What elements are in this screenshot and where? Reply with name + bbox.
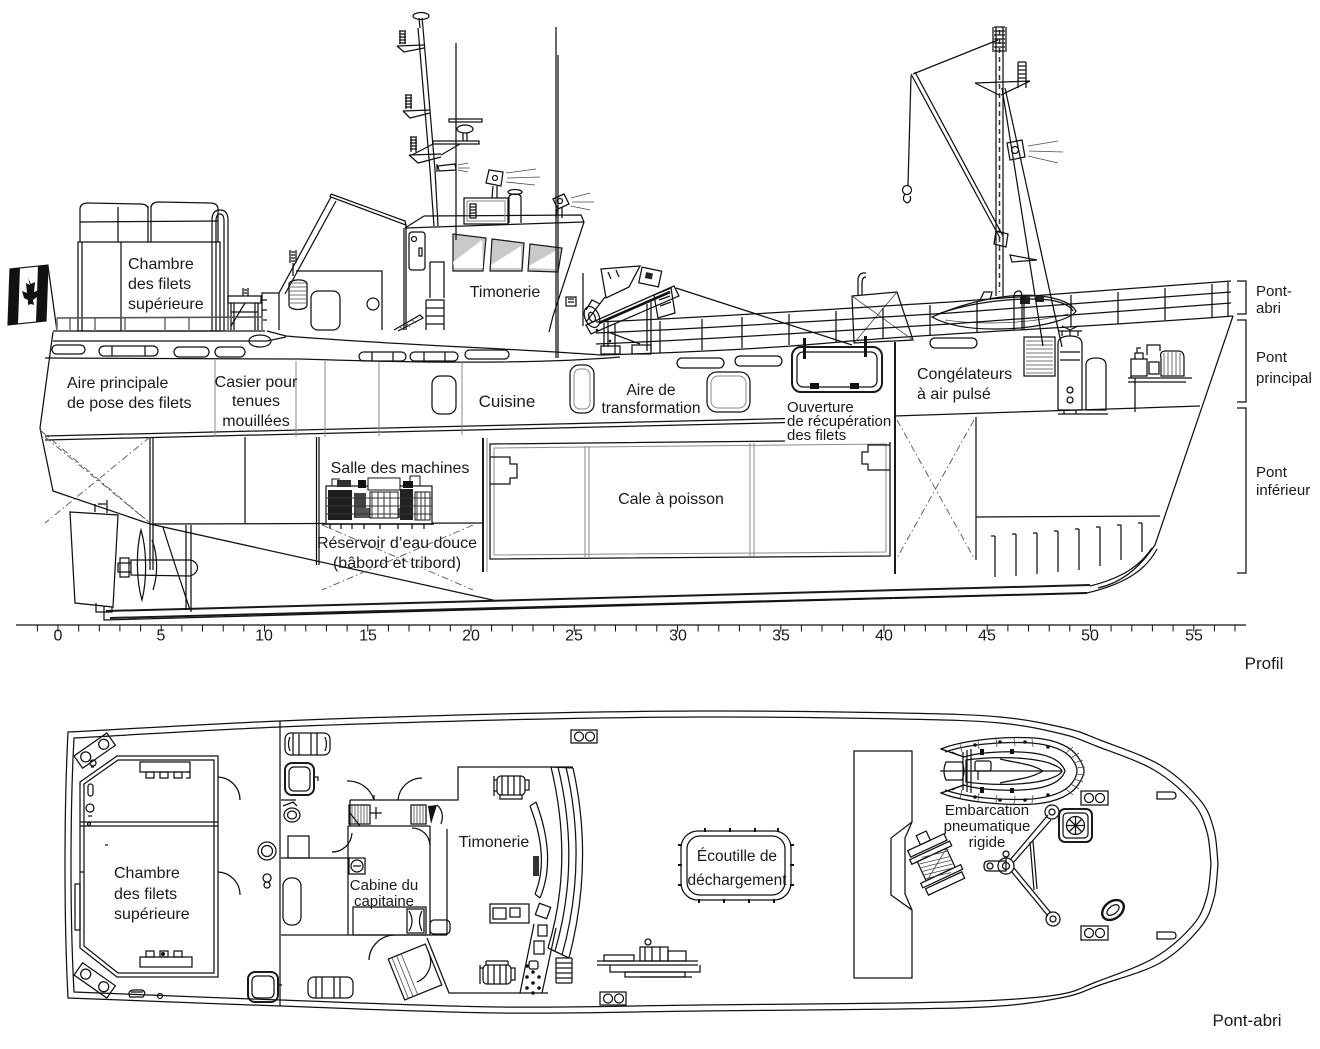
svg-text:Casier pour: Casier pour [215,374,298,391]
svg-text:Chambre: Chambre [114,865,180,882]
svg-text:Embarcation: Embarcation [945,802,1029,819]
svg-text:des filets: des filets [114,886,177,903]
svg-text:Timonerie: Timonerie [459,834,530,851]
svg-text:Chambre: Chambre [128,256,194,273]
svg-text:Aire de: Aire de [626,382,675,399]
svg-text:Cuisine: Cuisine [479,392,536,411]
svg-text:supérieure: supérieure [128,296,204,313]
svg-text:45: 45 [978,628,996,645]
svg-text:principal: principal [1256,370,1312,387]
svg-text:(bâbord et tribord): (bâbord et tribord) [333,555,461,572]
svg-text:5: 5 [157,628,166,645]
svg-text:Profil: Profil [1245,654,1284,673]
svg-text:de pose des filets: de pose des filets [67,395,192,412]
svg-text:Cabine du: Cabine du [350,877,418,894]
svg-text:20: 20 [462,628,480,645]
svg-text:Pont-: Pont- [1256,283,1292,300]
svg-text:50: 50 [1081,628,1099,645]
svg-text:Écoutille de: Écoutille de [697,848,777,865]
svg-text:à air pulsé: à air pulsé [917,386,991,403]
svg-text:des filets: des filets [787,427,846,444]
svg-text:pneumatique: pneumatique [944,818,1031,835]
svg-text:Pont: Pont [1256,349,1288,366]
svg-text:Salle des machines: Salle des machines [331,460,470,477]
svg-text:capitaine: capitaine [354,893,414,910]
svg-text:Pont-abri: Pont-abri [1213,1011,1282,1030]
svg-text:inférieur: inférieur [1256,482,1310,499]
svg-text:Pont: Pont [1256,464,1288,481]
svg-text:Cale à poisson: Cale à poisson [618,491,724,508]
svg-text:abri: abri [1256,300,1281,317]
svg-text:supérieure: supérieure [114,906,190,923]
svg-text:0: 0 [54,628,63,645]
svg-text:55: 55 [1185,628,1203,645]
svg-text:des filets: des filets [128,276,191,293]
svg-text:30: 30 [669,628,687,645]
svg-text:10: 10 [255,628,273,645]
svg-text:Timonerie: Timonerie [470,284,541,301]
svg-text:35: 35 [772,628,790,645]
svg-text:tenues: tenues [232,393,280,410]
svg-text:mouillées: mouillées [222,413,290,430]
svg-text:Aire principale: Aire principale [67,375,168,392]
svg-text:déchargement: déchargement [687,872,787,889]
svg-text:Congélateurs: Congélateurs [917,366,1012,383]
svg-text:15: 15 [359,628,377,645]
svg-text:transformation: transformation [601,400,700,417]
svg-text:25: 25 [565,628,583,645]
svg-text:rigide: rigide [969,834,1006,851]
svg-text:Réservoir d’eau douce: Réservoir d’eau douce [317,535,477,552]
svg-text:40: 40 [875,628,893,645]
